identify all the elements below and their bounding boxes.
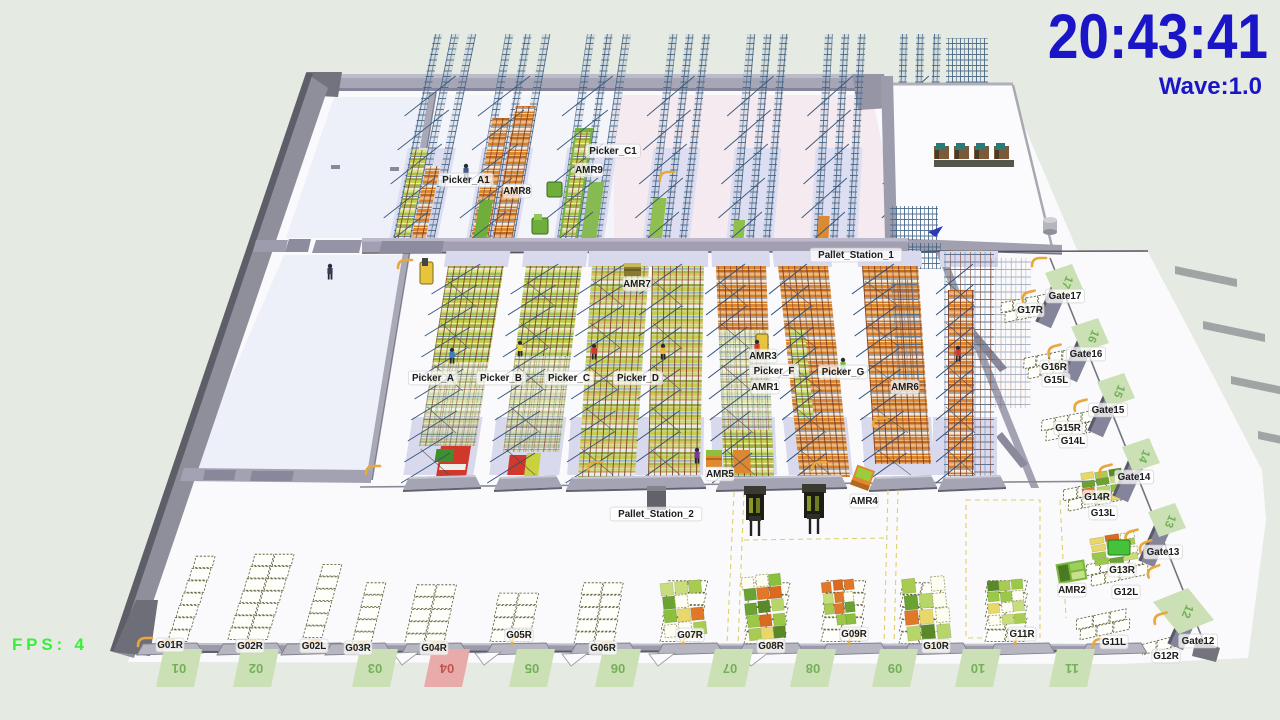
svg-text:G06R: G06R [590,643,616,654]
svg-text:G01R: G01R [157,640,183,651]
svg-text:G11L: G11L [1102,637,1126,648]
svg-text:03: 03 [368,661,382,676]
svg-text:G15R: G15R [1055,423,1081,434]
svg-text:AMR8: AMR8 [503,186,531,197]
svg-text:G13R: G13R [1109,565,1135,576]
svg-text:G05R: G05R [506,630,532,641]
svg-text:Gate15: Gate15 [1092,405,1125,416]
svg-text:G12R: G12R [1153,651,1179,662]
svg-text:09: 09 [888,661,902,676]
svg-text:AMR6: AMR6 [891,382,919,393]
svg-text:Picker_F: Picker_F [754,366,795,377]
svg-text:08: 08 [806,661,820,676]
svg-text:G09R: G09R [841,629,867,640]
svg-text:G16R: G16R [1041,362,1067,373]
svg-text:Picker_A: Picker_A [412,373,454,384]
svg-text:G03R: G03R [345,643,371,654]
svg-text:AMR5: AMR5 [706,469,734,480]
svg-text:Picker_C1: Picker_C1 [589,146,637,157]
svg-text:Gate16: Gate16 [1070,349,1103,360]
svg-text:Wave:1.0: Wave:1.0 [1159,73,1262,100]
svg-text:G10R: G10R [923,641,949,652]
svg-text:06: 06 [611,661,625,676]
svg-text:11: 11 [1065,661,1079,676]
svg-text:02: 02 [249,661,263,676]
svg-text:G02L: G02L [302,641,327,652]
svg-text:FPS: 4: FPS: 4 [12,635,88,654]
svg-text:AMR4: AMR4 [850,496,878,507]
svg-text:Gate17: Gate17 [1049,291,1082,302]
svg-text:G15L: G15L [1044,375,1069,386]
svg-text:Gate12: Gate12 [1182,636,1215,647]
svg-text:G11R: G11R [1009,629,1034,640]
svg-text:Gate14: Gate14 [1118,472,1151,483]
svg-text:Pallet_Station_1: Pallet_Station_1 [818,250,894,261]
svg-text:05: 05 [525,661,539,676]
svg-text:G14R: G14R [1084,492,1110,503]
svg-text:10: 10 [971,661,985,676]
svg-text:01: 01 [172,661,186,676]
svg-text:20:43:41: 20:43:41 [1048,3,1268,72]
svg-text:Pallet_Station_2: Pallet_Station_2 [618,509,694,520]
svg-text:AMR9: AMR9 [575,165,603,176]
svg-text:AMR1: AMR1 [751,382,779,393]
svg-text:G04R: G04R [421,643,447,654]
svg-text:AMR2: AMR2 [1058,585,1086,596]
svg-text:AMR3: AMR3 [749,351,777,362]
svg-text:G12L: G12L [1114,587,1139,598]
svg-text:G13L: G13L [1091,508,1116,519]
svg-text:07: 07 [723,661,737,676]
svg-text:Picker_D: Picker_D [617,373,659,384]
svg-text:G14L: G14L [1061,436,1086,447]
svg-text:G07R: G07R [677,630,703,641]
svg-text:04: 04 [439,661,454,676]
svg-text:Gate13: Gate13 [1147,547,1180,558]
svg-text:AMR7: AMR7 [623,279,651,290]
svg-text:Picker_A1: Picker_A1 [442,175,490,186]
svg-text:Picker_G: Picker_G [822,367,865,378]
svg-text:G08R: G08R [758,641,784,652]
svg-text:G02R: G02R [237,641,263,652]
svg-text:Picker_B: Picker_B [480,373,522,384]
svg-text:Picker_C: Picker_C [548,373,590,384]
svg-text:G17R: G17R [1017,305,1043,316]
